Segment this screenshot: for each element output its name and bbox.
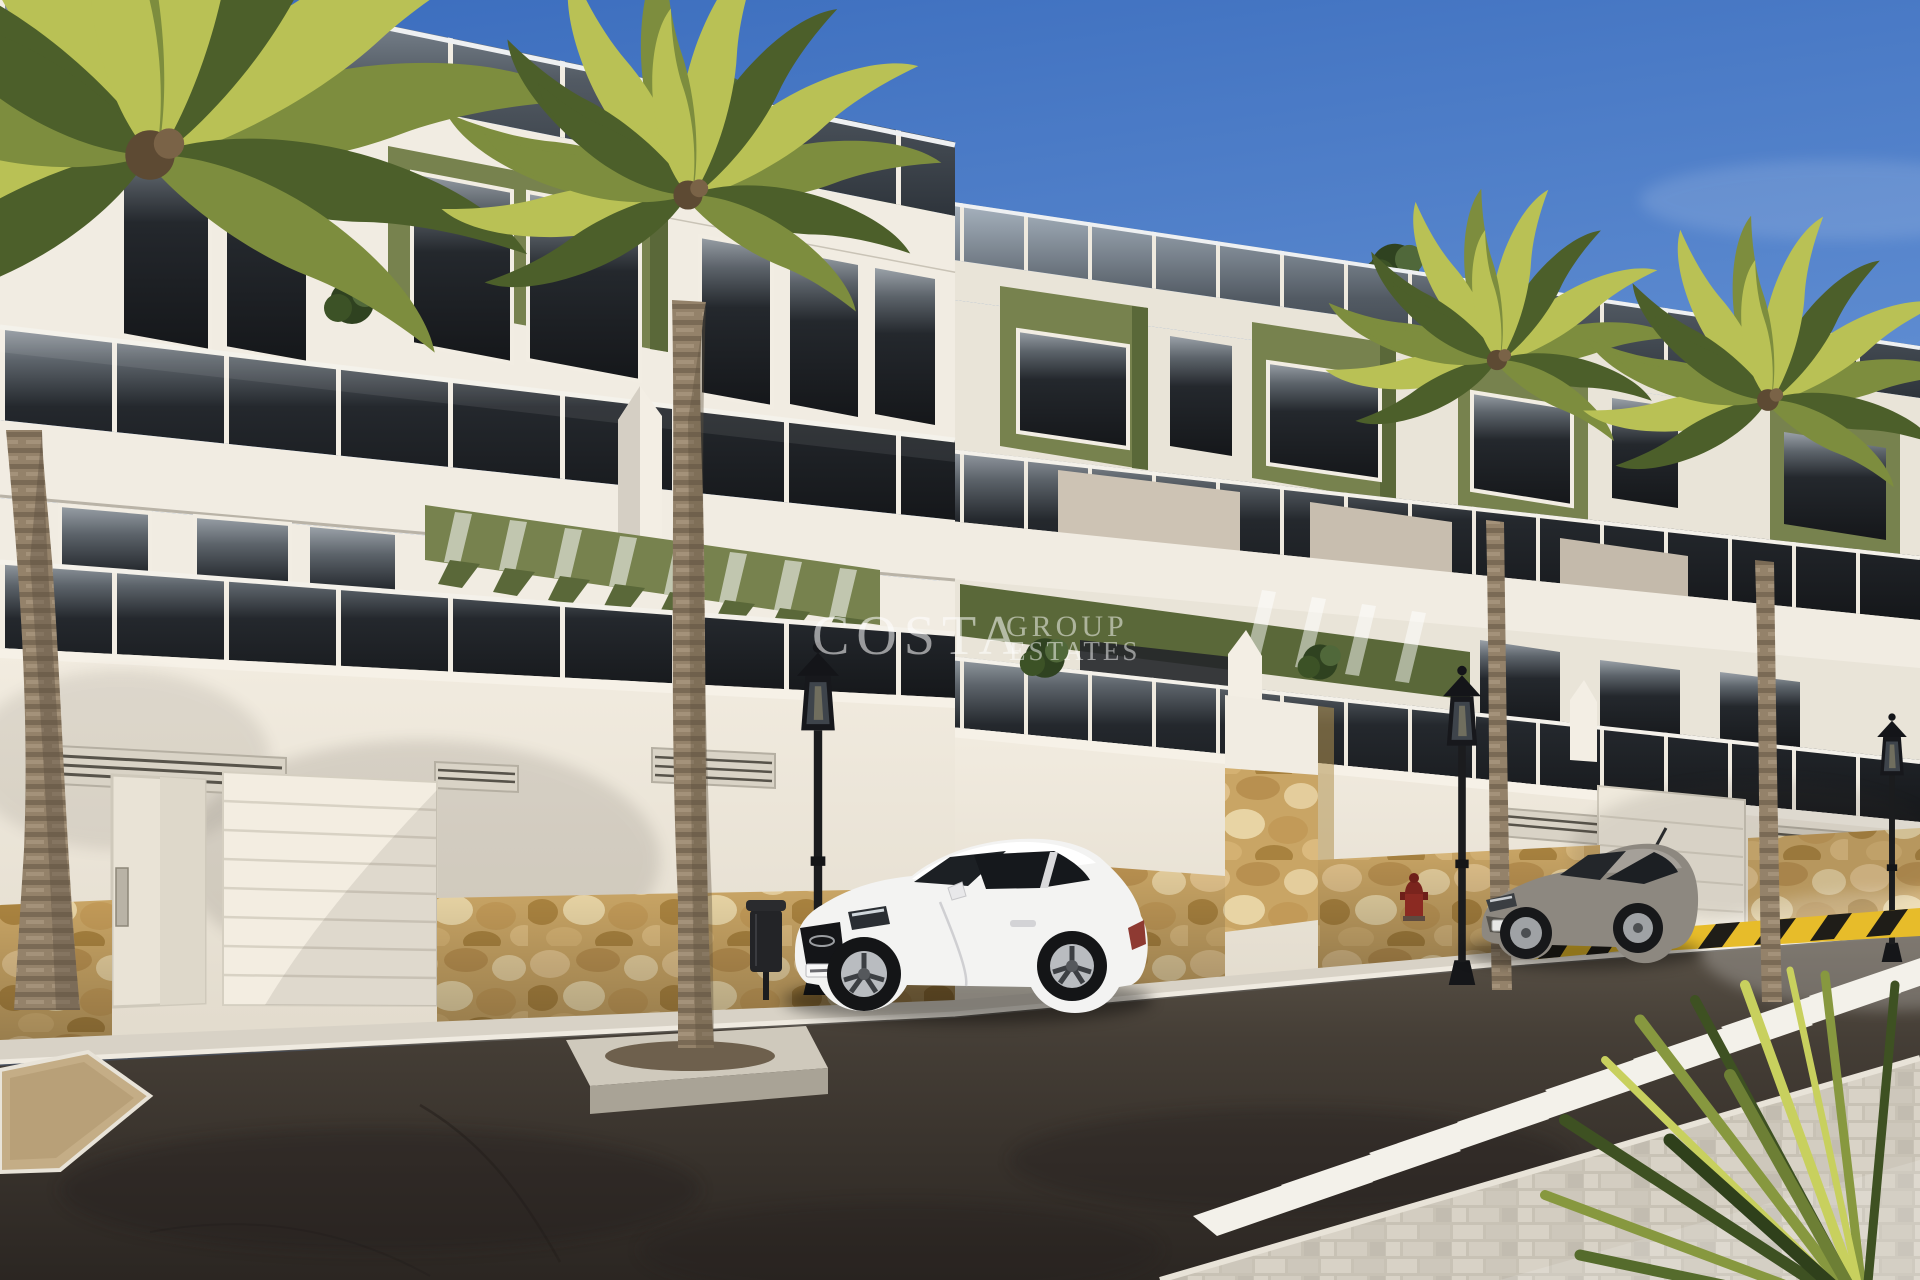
- front-wheel: [827, 937, 901, 1011]
- front-wheel: [1500, 907, 1552, 959]
- pedestrian-door: [112, 775, 205, 1007]
- vent-grille: [652, 748, 775, 788]
- vent-grille: [435, 762, 518, 792]
- garage-door-left: [223, 772, 437, 1006]
- podium-corner-upper: [1225, 695, 1318, 775]
- stone-corner-pillar: [1225, 768, 1318, 932]
- architectural-render-scene: COSTA GROUP ESTATES: [0, 0, 1920, 1280]
- window: [700, 236, 772, 407]
- scene-canvas: [0, 0, 1920, 1280]
- door-handle: [116, 868, 128, 926]
- window: [875, 268, 935, 425]
- palm-shadow-on-road: [60, 1128, 700, 1252]
- door-handle: [1010, 920, 1036, 927]
- window: [1018, 330, 1128, 448]
- window: [1472, 392, 1572, 506]
- rear-wheel: [1037, 931, 1107, 1001]
- green-box-shade: [1132, 306, 1148, 470]
- window: [1170, 336, 1232, 456]
- rear-wheel: [1613, 903, 1663, 953]
